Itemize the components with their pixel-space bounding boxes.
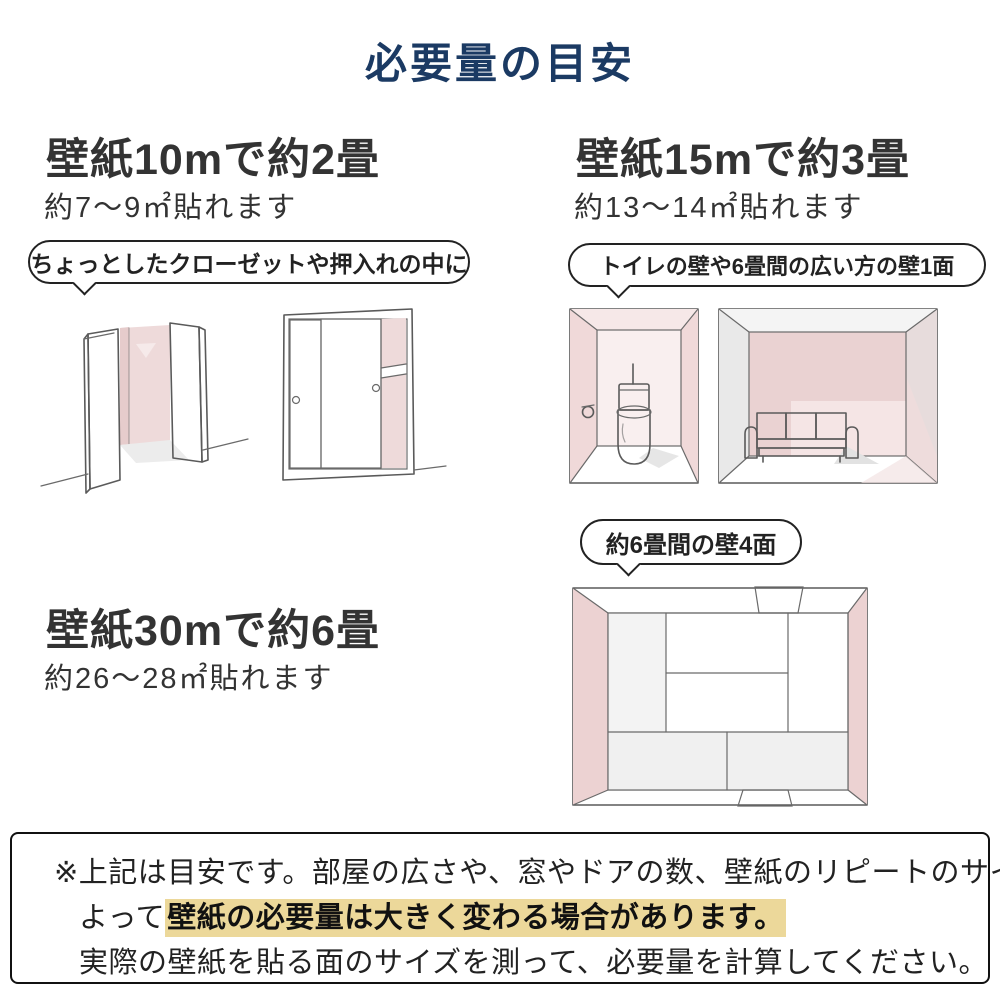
infographic-page: 必要量の目安 壁紙10mで約2畳 約7〜9㎡貼れます ちょっとしたクローゼットや… [0,0,1000,1000]
toilet-speech-bubble-label: トイレの壁や6畳間の広い方の壁1面 [600,249,954,281]
closet-speech-bubble: ちょっとしたクローゼットや押入れの中に [28,240,470,284]
note-line-3: 実際の壁紙を貼る面のサイズを測って、必要量を計算してください。 [54,941,988,986]
open-closet-illustration [40,302,250,494]
page-title: 必要量の目安 [0,30,1000,91]
wallpaper-10m-heading: 壁紙10mで約2畳 [46,125,380,187]
note-line-3-text: 実際の壁紙を貼る面のサイズを測って、必要量を計算してください。 [79,947,988,979]
toilet-speech-bubble: トイレの壁や6畳間の広い方の壁1面 [568,243,986,287]
wallpaper-10m-subtext: 約7〜9㎡貼れます [44,184,297,226]
tatami-room-illustration [571,586,869,808]
note-line-2: よって壁紙の必要量は大きく変わる場合があります。 [54,896,988,941]
note-line-2-prefix: よって [79,902,165,934]
six-mat-speech-bubble: 約6畳間の壁4面 [580,519,802,565]
closet-speech-bubble-label: ちょっとしたクローゼットや押入れの中に [31,245,468,279]
wallpaper-30m-heading: 壁紙30mで約6畳 [46,596,380,658]
wallpaper-15m-subtext: 約13〜14㎡貼れます [574,184,864,226]
note-line-1: ※上記は目安です。部屋の広さや、窓やドアの数、壁紙のリピートのサイズなどに [54,851,988,896]
usage-note-box: ※上記は目安です。部屋の広さや、窓やドアの数、壁紙のリピートのサイズなどに よっ… [10,832,990,984]
wallpaper-30m-subtext: 約26〜28㎡貼れます [44,655,334,697]
wallpaper-15m-heading: 壁紙15mで約3畳 [576,125,910,187]
toilet-room-illustration [567,306,701,486]
note-highlighted-text: 壁紙の必要量は大きく変わる場合があります。 [165,899,786,937]
note-line-1-text: ※上記は目安です。部屋の広さや、窓やドアの数、壁紙のリピートのサイズなどに [54,857,1000,889]
sliding-closet-illustration [282,308,447,488]
living-room-illustration [716,306,940,486]
